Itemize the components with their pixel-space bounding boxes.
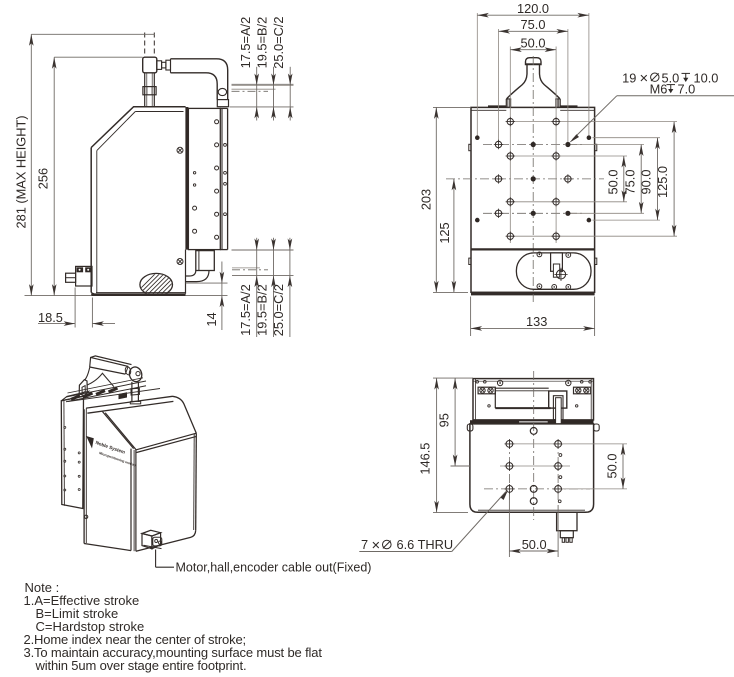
svg-text:7: 7 [361,537,368,552]
svg-text:75.0: 75.0 [622,170,637,195]
svg-text:146.5: 146.5 [418,443,433,475]
svg-text:25.0=C/2: 25.0=C/2 [271,16,286,68]
svg-text:75.0: 75.0 [521,17,546,32]
svg-text:within 5um over stage entire f: within 5um over stage entire footprint. [35,658,247,673]
svg-text:125: 125 [437,222,452,243]
svg-text:125.0: 125.0 [655,166,670,198]
svg-text:95: 95 [437,413,452,427]
svg-text:203: 203 [419,189,434,210]
svg-text:90.0: 90.0 [639,170,654,195]
svg-text:256: 256 [36,168,51,189]
svg-text:17.5=A/2: 17.5=A/2 [238,284,253,336]
svg-text:281 (MAX HEIGHT): 281 (MAX HEIGHT) [13,115,28,228]
svg-text:M6: M6 [650,81,668,96]
svg-text:6.6 THRU: 6.6 THRU [397,537,454,552]
svg-text:133: 133 [526,314,547,329]
svg-text:50.0: 50.0 [605,170,620,195]
svg-text:14: 14 [204,312,219,326]
svg-text:19.5=B/2: 19.5=B/2 [254,17,269,69]
svg-text:10.0: 10.0 [694,70,719,85]
svg-text:18.5: 18.5 [38,310,63,325]
svg-text:120.0: 120.0 [517,1,549,16]
svg-text:×: × [640,71,649,87]
svg-text:50.0: 50.0 [521,36,546,51]
svg-text:7.0: 7.0 [678,81,696,96]
svg-text:19: 19 [622,70,636,85]
svg-text:Motor,hall,encoder cable out(F: Motor,hall,encoder cable out(Fixed) [176,561,372,575]
svg-text:25.0=C/2: 25.0=C/2 [271,284,286,336]
svg-text:17.5=A/2: 17.5=A/2 [238,17,253,69]
svg-text:19.5=B/2: 19.5=B/2 [255,284,270,336]
svg-text:50.0: 50.0 [604,454,619,479]
svg-text:50.0: 50.0 [522,537,547,552]
